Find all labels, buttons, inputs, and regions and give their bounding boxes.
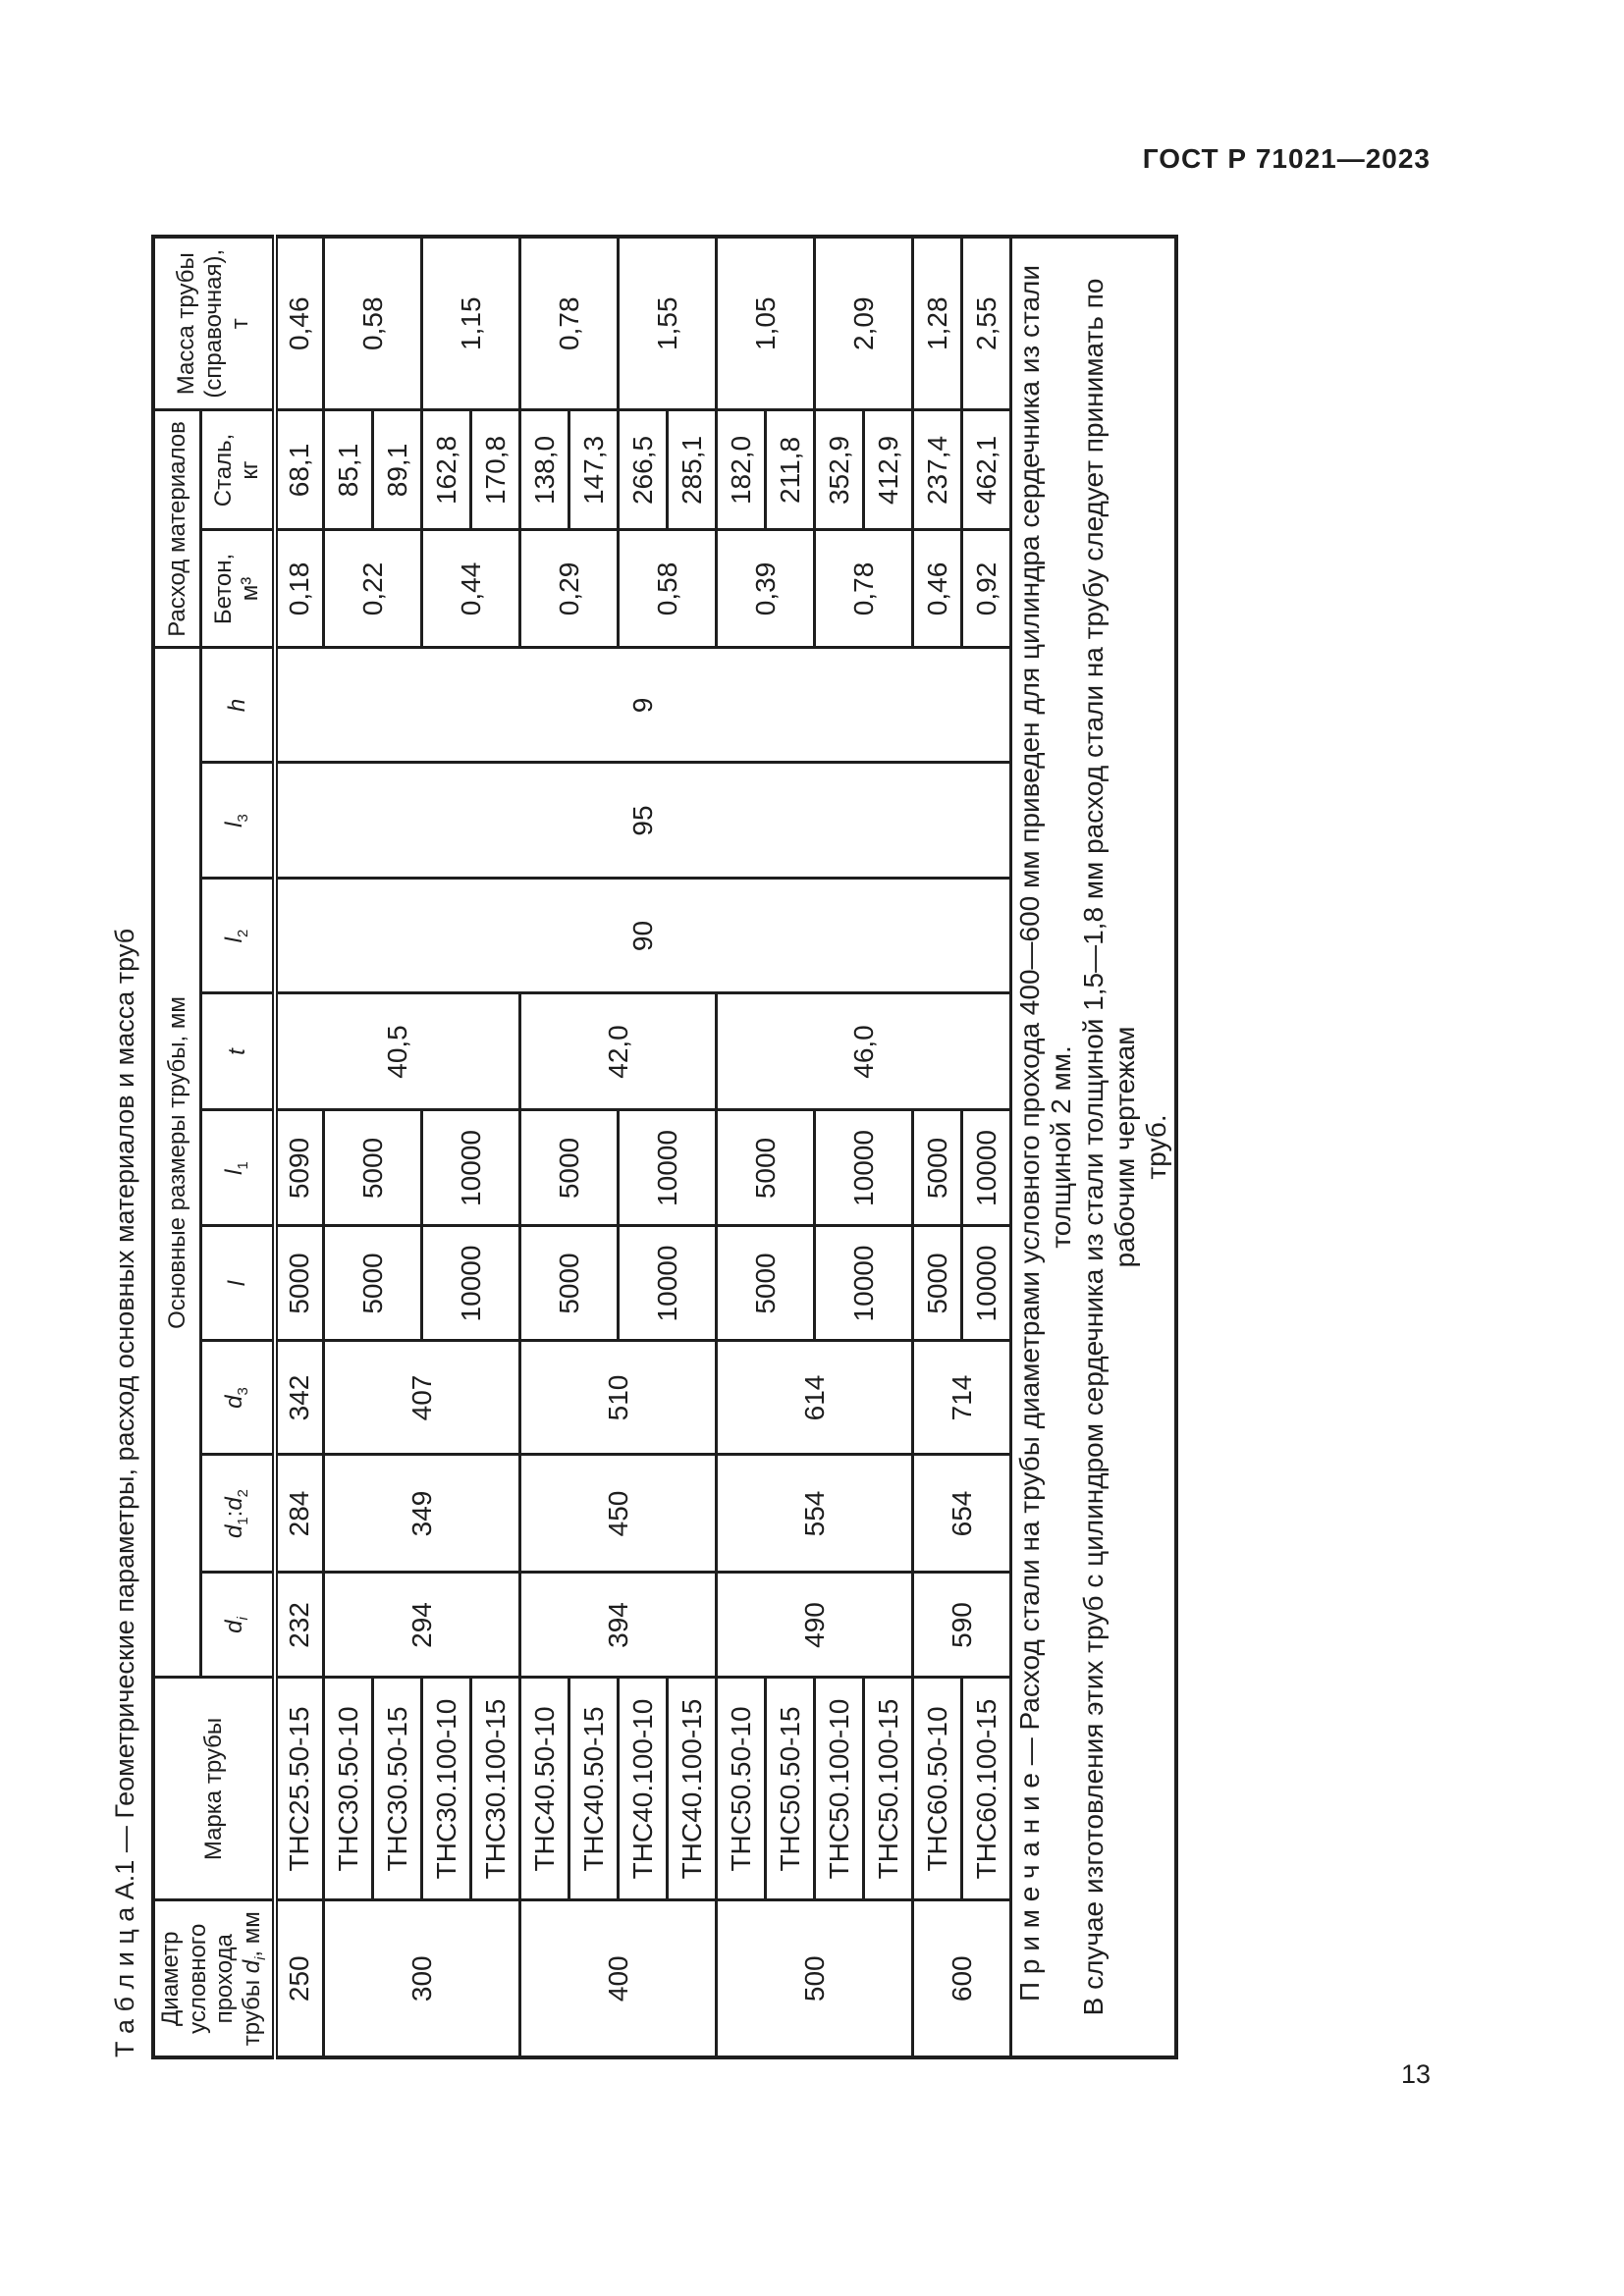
table-cell: 10000 xyxy=(619,1226,717,1341)
table-cell: 285,1 xyxy=(668,410,717,530)
table-cell: 500 xyxy=(717,1900,913,2057)
table-cell: ТНС40.50-10 xyxy=(520,1678,569,1900)
table-cell: ТНС60.100-15 xyxy=(962,1678,1011,1900)
table-cell: 294 xyxy=(324,1573,520,1678)
table-cell: 232 xyxy=(275,1573,324,1678)
table-cell: 138,0 xyxy=(520,410,569,530)
table-cell: 0,78 xyxy=(520,237,619,410)
table-cell: 407 xyxy=(324,1341,520,1455)
table-cell: 654 xyxy=(913,1455,1011,1573)
table-cell: 1,05 xyxy=(717,237,815,410)
table-cell: 342 xyxy=(275,1341,324,1455)
table-cell: 5000 xyxy=(520,1226,619,1341)
table-cell: 5000 xyxy=(275,1226,324,1341)
table-cell: 5000 xyxy=(717,1110,815,1226)
table-cell: 284 xyxy=(275,1455,324,1573)
table-cell: 490 xyxy=(717,1573,913,1678)
table-cell: 0,58 xyxy=(619,530,717,648)
table-cell: 0,29 xyxy=(520,530,619,648)
table-cell: 2,55 xyxy=(962,237,1011,410)
table-cell: 9 xyxy=(275,648,1011,763)
header-t: t xyxy=(201,993,275,1110)
table-cell: 42,0 xyxy=(520,993,717,1110)
document-page: ГОСТ Р 71021—2023 Т а б л и ц а А.1 — Ге… xyxy=(0,0,1624,2296)
table-cell: 5000 xyxy=(520,1110,619,1226)
table-cell: ТНС50.100-15 xyxy=(864,1678,913,1900)
table-cell: 0,58 xyxy=(324,237,422,410)
table-cell: 90 xyxy=(275,879,1011,993)
table-row: 400ТНС40.50-103944505105000500042,00,291… xyxy=(520,237,569,2057)
table-cell: 10000 xyxy=(422,1110,520,1226)
table-cell: ТНС30.100-15 xyxy=(471,1678,520,1900)
table-cell: 400 xyxy=(520,1900,717,2057)
rotated-table-block: Т а б л и ц а А.1 — Геометрические парам… xyxy=(110,228,1123,2059)
header-diameter: Диаметрусловногопроходатрубы di, мм xyxy=(153,1900,275,2057)
table-cell: 349 xyxy=(324,1455,520,1573)
table-cell: 1,55 xyxy=(619,237,717,410)
table-cell: 5090 xyxy=(275,1110,324,1226)
table-cell: 46,0 xyxy=(717,993,1011,1110)
table-cell: 0,22 xyxy=(324,530,422,648)
table-row: 300ТНС30.50-10294349407500050000,2285,10… xyxy=(324,237,373,2057)
document-code-header: ГОСТ Р 71021—2023 xyxy=(0,143,1431,175)
table-note-section: П р и м е ч а н и е — Расход стали на тр… xyxy=(1011,237,1176,2057)
table-cell: 1,28 xyxy=(913,237,962,410)
table-cell: 95 xyxy=(275,763,1011,879)
table-cell: 40,5 xyxy=(275,993,520,1110)
table-row: ТНС50.100-1010000100000,78352,92,09 xyxy=(815,237,864,2057)
table-cell: 10000 xyxy=(619,1110,717,1226)
table-body: 250ТНС25.50-152322843425000509040,590959… xyxy=(275,237,1011,2057)
table-cell: ТНС40.50-15 xyxy=(569,1678,619,1900)
table-row: ТНС30.100-1010000100000,44162,81,15 xyxy=(422,237,471,2057)
header-dimensions-group: Основные размеры трубы, мм xyxy=(153,648,201,1678)
table-cell: 554 xyxy=(717,1455,913,1573)
table-cell: ТНС25.50-15 xyxy=(275,1678,324,1900)
table-note: П р и м е ч а н и е — Расход стали на тр… xyxy=(1011,237,1176,2057)
table-cell: 394 xyxy=(520,1573,717,1678)
header-steel: Сталь,кг xyxy=(201,410,275,530)
table-cell: 211,8 xyxy=(766,410,815,530)
table-cell: 510 xyxy=(520,1341,717,1455)
table-cell: ТНС60.50-10 xyxy=(913,1678,962,1900)
table-cell: ТНС30.100-10 xyxy=(422,1678,471,1900)
table-cell: 614 xyxy=(717,1341,913,1455)
table-cell: 0,44 xyxy=(422,530,520,648)
table-cell: 68,1 xyxy=(275,410,324,530)
note-row: П р и м е ч а н и е — Расход стали на тр… xyxy=(1011,237,1176,2057)
table-cell: ТНС30.50-15 xyxy=(373,1678,422,1900)
table-cell: 5000 xyxy=(324,1110,422,1226)
table-cell: ТНС50.100-10 xyxy=(815,1678,864,1900)
table-cell: 462,1 xyxy=(962,410,1011,530)
table-cell: 0,78 xyxy=(815,530,913,648)
table-cell: 0,92 xyxy=(962,530,1011,648)
table-row: 600ТНС60.50-10590654714500050000,46237,4… xyxy=(913,237,962,2057)
table-cell: ТНС30.50-10 xyxy=(324,1678,373,1900)
table-cell: 170,8 xyxy=(471,410,520,530)
table-cell: 10000 xyxy=(962,1226,1011,1341)
table-cell: 85,1 xyxy=(324,410,373,530)
table-cell: 266,5 xyxy=(619,410,668,530)
table-row: ТНС60.100-1510000100000,92462,12,55 xyxy=(962,237,1011,2057)
table-cell: 237,4 xyxy=(913,410,962,530)
table-cell: 0,46 xyxy=(913,530,962,648)
table-cell: 0,39 xyxy=(717,530,815,648)
header-concrete: Бетон,м³ xyxy=(201,530,275,648)
table-row: 250ТНС25.50-152322843425000509040,590959… xyxy=(275,237,324,2057)
table-cell: 450 xyxy=(520,1455,717,1573)
header-d3: d3 xyxy=(201,1341,275,1455)
table-cell: 5000 xyxy=(717,1226,815,1341)
table-header: Диаметрусловногопроходатрубы di, мм Марк… xyxy=(153,237,275,2057)
header-consumption-group: Расход материалов xyxy=(153,410,201,648)
header-l3: l3 xyxy=(201,763,275,879)
page-number: 13 xyxy=(0,2059,1431,2090)
table-cell: ТНС50.50-10 xyxy=(717,1678,766,1900)
table-row: ТНС40.100-1010000100000,58266,51,55 xyxy=(619,237,668,2057)
header-mass: Масса трубы(справочная),т xyxy=(153,237,275,410)
table-cell: 600 xyxy=(913,1900,1011,2057)
table-cell: 1,15 xyxy=(422,237,520,410)
header-l2: l2 xyxy=(201,879,275,993)
table-cell: 0,18 xyxy=(275,530,324,648)
table-cell: 2,09 xyxy=(815,237,913,410)
table-cell: ТНС40.100-10 xyxy=(619,1678,668,1900)
table-cell: 5000 xyxy=(913,1226,962,1341)
table-cell: 10000 xyxy=(815,1110,913,1226)
table-cell: 352,9 xyxy=(815,410,864,530)
table-cell: 300 xyxy=(324,1900,520,2057)
header-h: h xyxy=(201,648,275,763)
table-cell: 714 xyxy=(913,1341,1011,1455)
table-cell: 182,0 xyxy=(717,410,766,530)
table-cell: 5000 xyxy=(324,1226,422,1341)
table-a1: Диаметрусловногопроходатрубы di, мм Марк… xyxy=(151,235,1178,2059)
header-l1: l1 xyxy=(201,1110,275,1226)
table-cell: 250 xyxy=(275,1900,324,2057)
table-cell: 162,8 xyxy=(422,410,471,530)
header-di: di xyxy=(201,1573,275,1678)
header-marka: Марка трубы xyxy=(153,1678,275,1900)
header-d1d2: d1:d2 xyxy=(201,1455,275,1573)
table-cell: 0,46 xyxy=(275,237,324,410)
table-cell: 10000 xyxy=(962,1110,1011,1226)
table-cell: 147,3 xyxy=(569,410,619,530)
table-cell: 412,9 xyxy=(864,410,913,530)
table-cell: ТНС50.50-15 xyxy=(766,1678,815,1900)
table-cell: ТНС40.100-15 xyxy=(668,1678,717,1900)
table-row: 500ТНС50.50-104905546145000500046,00,391… xyxy=(717,237,766,2057)
table-cell: 89,1 xyxy=(373,410,422,530)
table-title: Т а б л и ц а А.1 — Геометрические парам… xyxy=(110,228,140,2057)
table-cell: 10000 xyxy=(815,1226,913,1341)
table-cell: 5000 xyxy=(913,1110,962,1226)
table-cell: 590 xyxy=(913,1573,1011,1678)
table-cell: 10000 xyxy=(422,1226,520,1341)
header-l: l xyxy=(201,1226,275,1341)
